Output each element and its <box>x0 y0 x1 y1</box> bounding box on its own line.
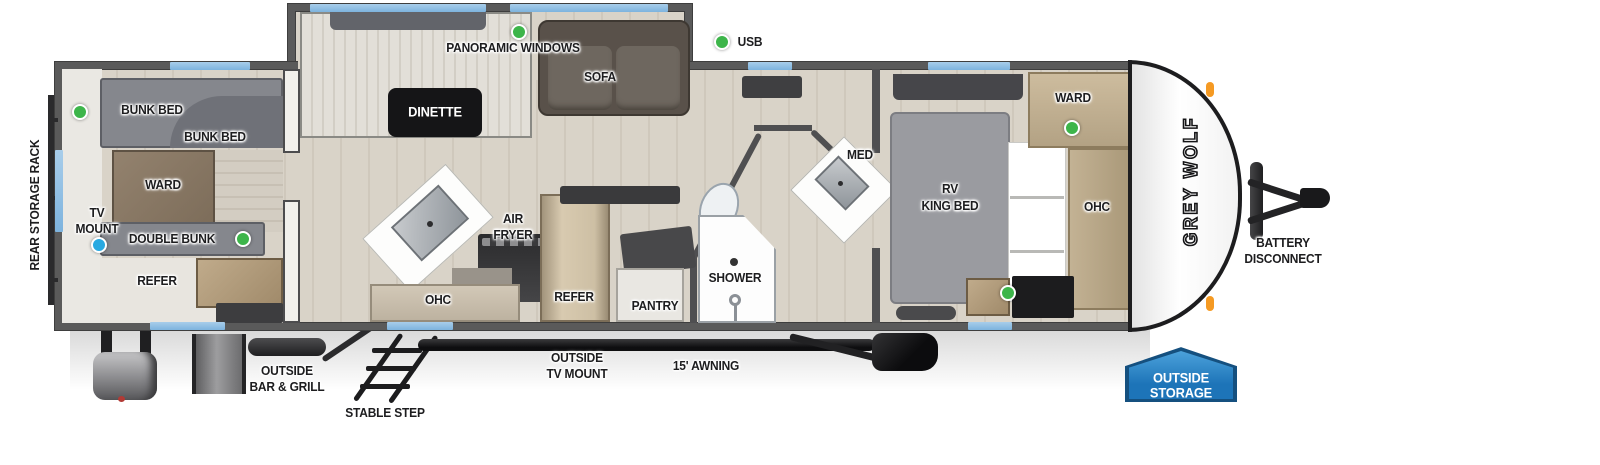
tongue-jack <box>1250 162 1263 240</box>
rv-floorplan-diagram: GREY WOLF OUTSIDE STORAGE REAR STORAGE R… <box>0 0 1600 465</box>
bedroom-divider-wall <box>872 248 880 323</box>
marker-light <box>1206 82 1214 97</box>
battery-disconnect-label-1: BATTERY <box>1256 236 1310 250</box>
med-sink-drain <box>838 181 843 186</box>
spare-tire <box>93 352 157 400</box>
stabilizer-panel <box>192 334 246 394</box>
bedroom-divider-wall <box>872 69 880 153</box>
rear-ward-side-panel <box>215 150 283 232</box>
rear-counter-dark <box>216 303 283 323</box>
rear-storage-rack-tick <box>48 278 58 282</box>
bedroom-tv <box>1012 276 1074 318</box>
entry-fold-step <box>872 333 938 371</box>
outside-storage-label-2: STORAGE <box>1150 386 1212 401</box>
window <box>748 62 792 70</box>
rear-storage-rack-tick <box>48 118 58 122</box>
awning-label: 15' AWNING <box>673 359 739 373</box>
bedroom-ohc-cabinet <box>1068 148 1133 310</box>
rear-kitchenette <box>196 258 283 308</box>
marker-light <box>1206 296 1214 311</box>
pantry-label: PANTRY <box>632 299 679 313</box>
stable-step-label: STABLE STEP <box>345 406 424 420</box>
divider-wall <box>283 200 300 323</box>
bedroom-ward-label: WARD <box>1055 91 1091 105</box>
divider-wall <box>283 69 300 153</box>
dinette-back-cushion <box>330 12 486 30</box>
usb-indicator-icon <box>1064 120 1080 136</box>
rv-king-bed-label-2: KING BED <box>921 199 978 213</box>
stable-step-rung <box>372 348 422 353</box>
rear-ward-label: WARD <box>145 178 181 192</box>
rear-storage-rack-label: REAR STORAGE RACK <box>28 140 42 271</box>
kitchen-refer-label: REFER <box>554 290 594 304</box>
shower-drain <box>730 258 738 266</box>
window <box>170 62 250 70</box>
bed-shelf-line <box>1010 250 1064 253</box>
sofa-cushion <box>616 46 680 110</box>
outside-tv-mount-label-1: OUTSIDE <box>551 351 603 365</box>
corridor-ohc <box>742 76 802 98</box>
air-fryer-label-2: FRYER <box>493 228 532 242</box>
double-bunk-label: DOUBLE BUNK <box>129 232 215 246</box>
stable-step-rung <box>360 384 410 389</box>
window <box>55 150 63 232</box>
bed-shelf-line <box>1010 196 1064 199</box>
bar-grill-label-1: OUTSIDE <box>261 364 313 378</box>
tv-mount-label-1: TV <box>90 206 105 220</box>
kitchen-sink-drain <box>427 221 433 227</box>
rear-refer-label: REFER <box>137 274 177 288</box>
usb-indicator-icon <box>235 231 251 247</box>
outside-tv-mount-label-2: TV MOUNT <box>547 367 608 381</box>
bunk-bed-lower-label: BUNK BED <box>184 130 246 144</box>
med-label: MED <box>847 148 873 162</box>
bunk-bed-top-label: BUNK BED <box>121 103 183 117</box>
sofa-label: SOFA <box>584 70 616 84</box>
bath-wall-top <box>754 125 812 131</box>
window <box>387 322 453 330</box>
usb-legend-icon <box>714 34 730 50</box>
panoramic-window <box>310 4 486 12</box>
tv-mount-label-2: MOUNT <box>76 222 119 236</box>
tire-valve <box>118 396 125 402</box>
window <box>150 322 225 330</box>
bar-grill-bracket <box>248 338 326 356</box>
rv-king-bed-label-1: RV <box>942 182 958 196</box>
rear-storage-rack <box>48 95 54 305</box>
bedroom-ward <box>1028 72 1133 148</box>
shower-wand-stem <box>734 305 737 321</box>
bedroom-ohc-label: OHC <box>1084 200 1110 214</box>
kitchen-refer-top <box>560 186 680 204</box>
pantry-cabinet <box>616 268 684 322</box>
brand-logo: GREY WOLF <box>1182 116 1202 246</box>
shower-label: SHOWER <box>709 271 762 285</box>
dinette-label: DINETTE <box>408 105 462 120</box>
window <box>968 322 1012 330</box>
panoramic-window <box>510 4 668 12</box>
bedroom-soundbar <box>896 306 956 320</box>
window <box>928 62 1010 70</box>
outside-storage-label-1: OUTSIDE <box>1153 371 1209 386</box>
usb-legend-label: USB <box>738 35 763 49</box>
hitch-coupler <box>1300 188 1330 208</box>
usb-indicator-icon <box>1000 285 1016 301</box>
tv-mount-indicator-icon <box>91 237 107 253</box>
bar-grill-label-2: BAR & GRILL <box>249 380 324 394</box>
kitchen-ohc-label: OHC <box>425 293 451 307</box>
usb-indicator-icon <box>511 24 527 40</box>
battery-disconnect-label-2: DISCONNECT <box>1244 252 1321 266</box>
usb-indicator-icon <box>72 104 88 120</box>
stable-step-rung <box>366 366 416 371</box>
panoramic-windows-label: PANORAMIC WINDOWS <box>446 41 580 55</box>
air-fryer-label-1: AIR <box>503 212 523 226</box>
bedroom-headboard-ohc <box>893 74 1023 100</box>
